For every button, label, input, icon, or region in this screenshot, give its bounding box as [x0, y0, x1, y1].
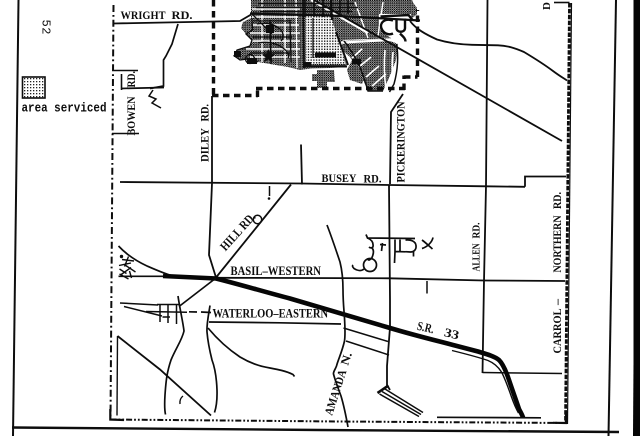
- svg-text:D: D: [541, 2, 553, 10]
- svg-text:52: 52: [39, 20, 53, 35]
- svg-text:area serviced: area serviced: [22, 102, 107, 116]
- svg-text:RD.: RD.: [364, 172, 382, 186]
- svg-text:PICKERINGTON: PICKERINGTON: [394, 101, 408, 182]
- svg-text:CARROL: CARROL: [550, 309, 564, 354]
- svg-text:BASIL–WESTERN: BASIL–WESTERN: [231, 264, 322, 278]
- svg-text:RD.: RD.: [550, 192, 564, 209]
- svg-text:–: –: [550, 298, 564, 306]
- svg-text:BOWEN: BOWEN: [126, 96, 138, 136]
- svg-text:RD.: RD.: [126, 71, 138, 88]
- svg-text:DILEY: DILEY: [198, 128, 212, 162]
- svg-text:RD.: RD.: [198, 104, 212, 122]
- svg-text:WATERLOO–EASTERN: WATERLOO–EASTERN: [213, 307, 329, 321]
- svg-text:BUSEY: BUSEY: [322, 171, 357, 185]
- svg-text:RD.: RD.: [172, 8, 193, 22]
- svg-text:NORTHERN: NORTHERN: [550, 215, 564, 272]
- svg-text:RD.: RD.: [471, 222, 483, 238]
- svg-text:ALLEN: ALLEN: [471, 243, 483, 271]
- svg-text:WRIGHT: WRIGHT: [121, 8, 166, 22]
